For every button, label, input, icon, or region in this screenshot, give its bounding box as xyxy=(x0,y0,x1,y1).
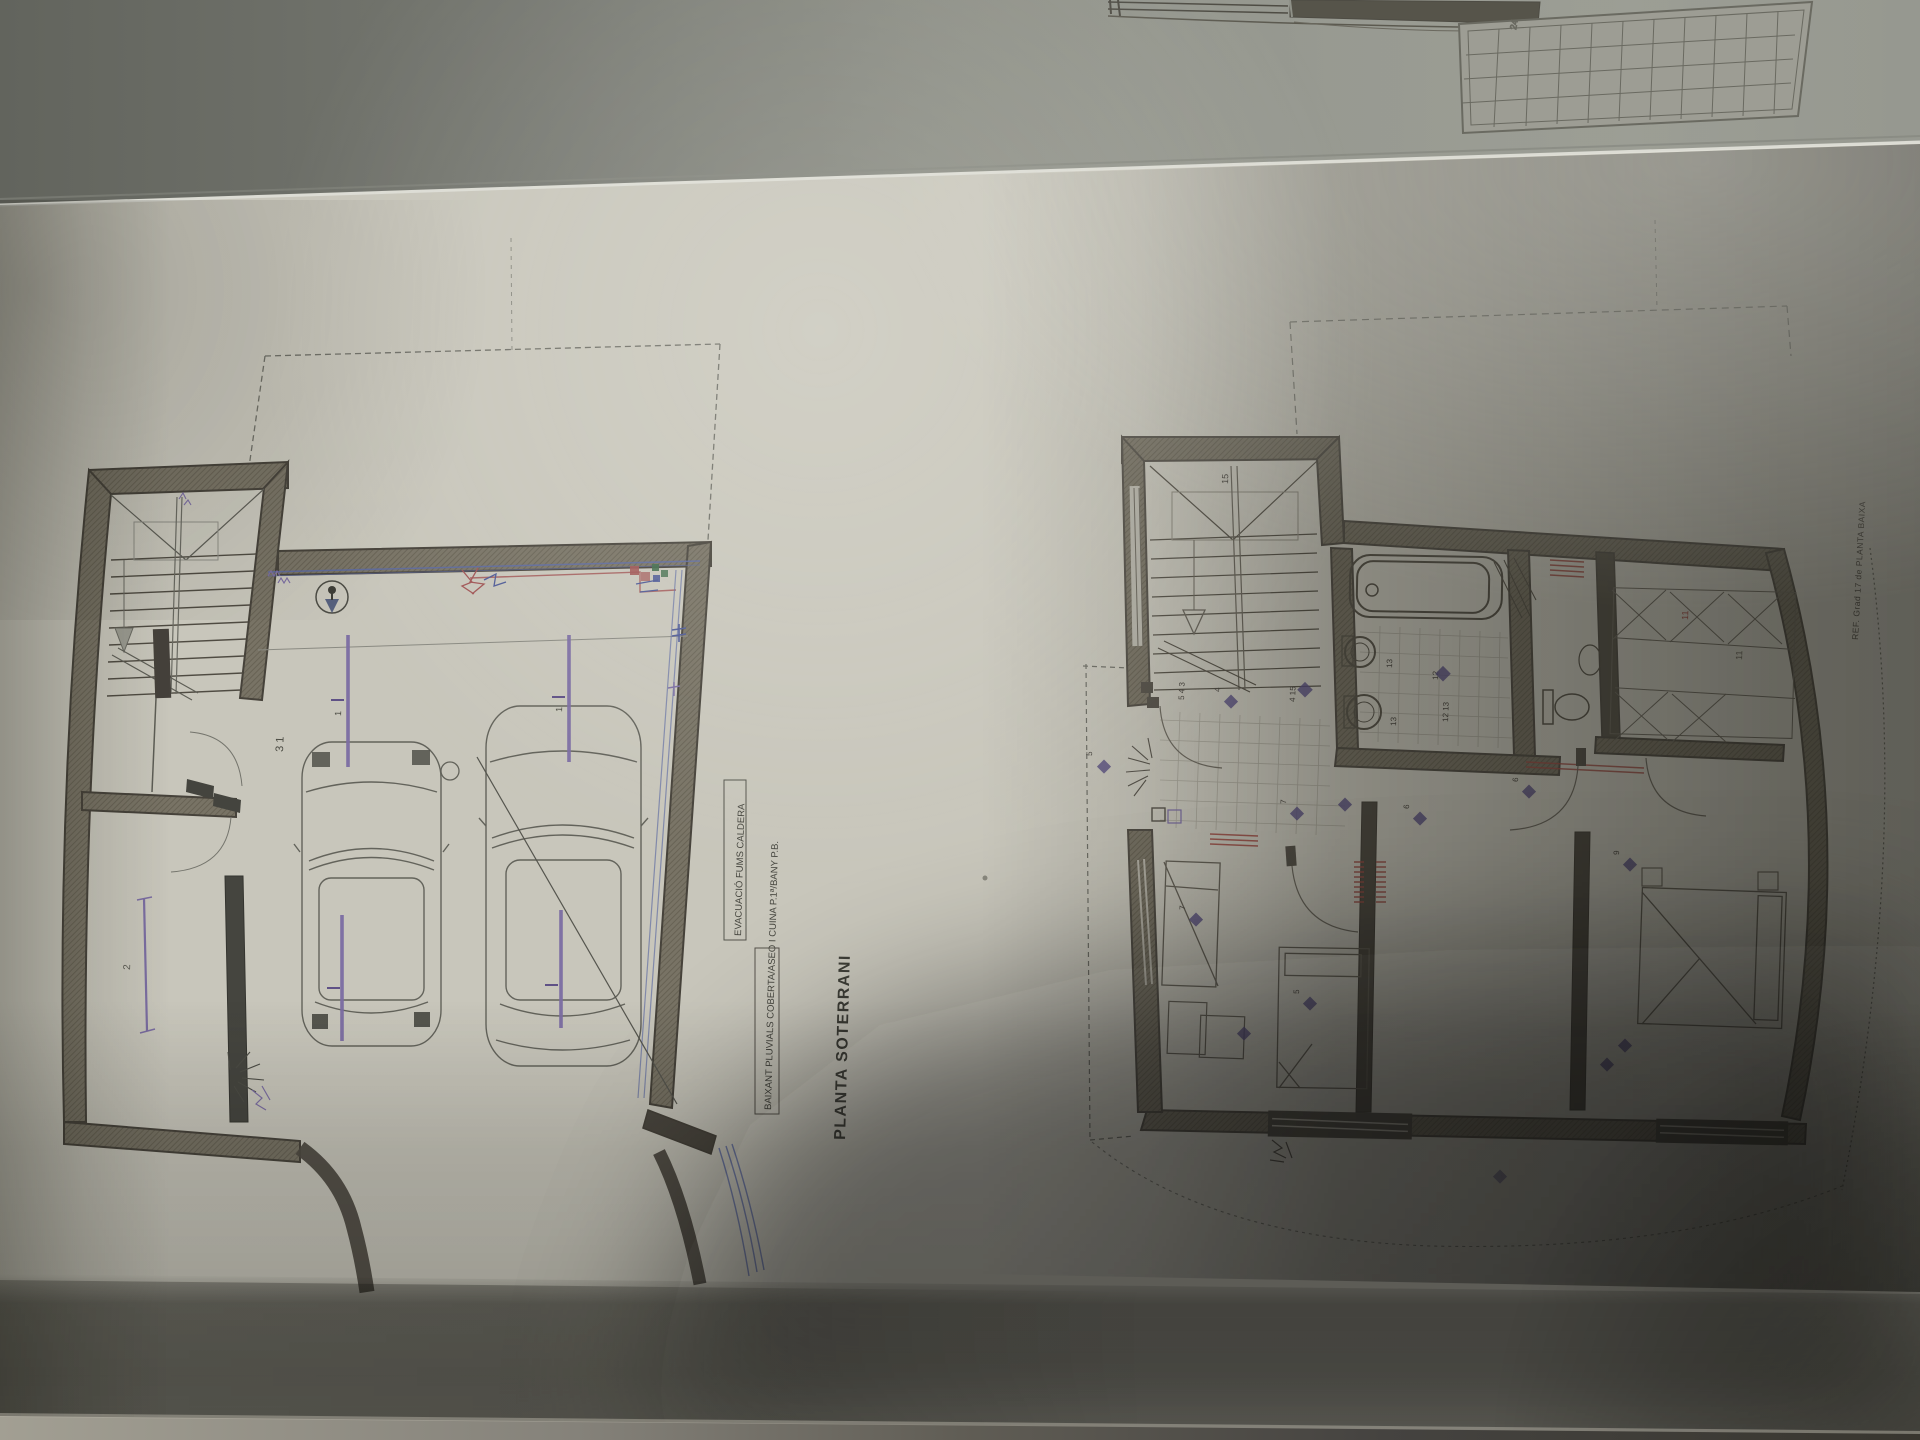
svg-text:24: 24 xyxy=(1508,19,1520,31)
